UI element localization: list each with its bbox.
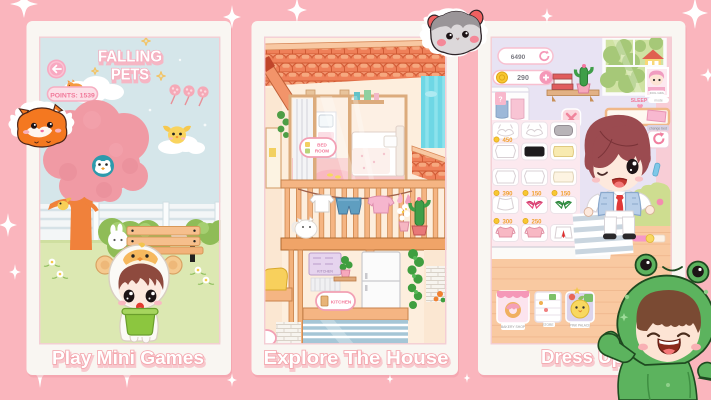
svg-text:150: 150 bbox=[531, 192, 542, 198]
svg-text:IDOL GIRL: IDOL GIRL bbox=[650, 91, 665, 95]
svg-text:KITCHEN: KITCHEN bbox=[331, 300, 352, 305]
svg-text:ROOM: ROOM bbox=[315, 149, 329, 154]
svg-text:290: 290 bbox=[517, 75, 529, 82]
svg-text:Explore The House: Explore The House bbox=[264, 348, 449, 368]
svg-text:250: 250 bbox=[531, 220, 542, 226]
svg-text:PETS: PETS bbox=[111, 67, 149, 84]
svg-text:BED: BED bbox=[317, 143, 327, 148]
svg-text:mode: mode bbox=[654, 99, 663, 103]
svg-text:POINTS: 1539: POINTS: 1539 bbox=[50, 92, 95, 99]
svg-text:?: ? bbox=[498, 97, 502, 104]
svg-text:PINK PALACE: PINK PALACE bbox=[570, 324, 591, 328]
svg-text:BAKERY SHOP: BAKERY SHOP bbox=[501, 325, 526, 329]
svg-text:150: 150 bbox=[560, 192, 571, 198]
svg-text:Play Mini Games: Play Mini Games bbox=[52, 348, 204, 368]
svg-text:change bed: change bed bbox=[649, 127, 667, 131]
svg-text:FALLING: FALLING bbox=[98, 49, 162, 66]
svg-text:STORE: STORE bbox=[543, 323, 554, 327]
svg-text:450: 450 bbox=[502, 138, 513, 144]
svg-text:6490: 6490 bbox=[511, 54, 526, 61]
svg-text:KITCHEN: KITCHEN bbox=[317, 270, 333, 274]
svg-text:390: 390 bbox=[502, 192, 513, 198]
svg-text:SLEEP: SLEEP bbox=[631, 98, 648, 104]
svg-text:300: 300 bbox=[502, 220, 513, 226]
